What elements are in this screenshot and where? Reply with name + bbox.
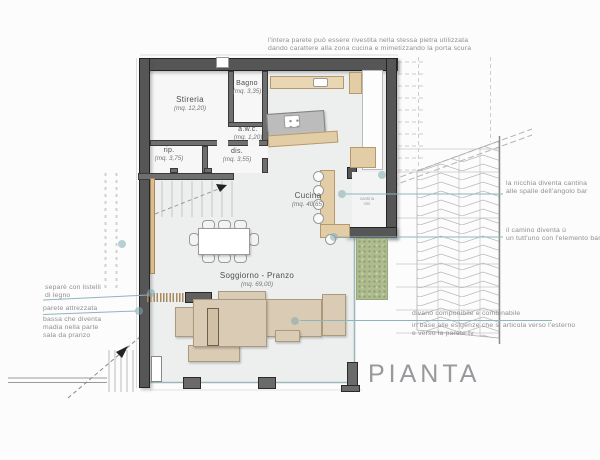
annotation-line: madia nella parte — [43, 324, 101, 332]
annotation-parete-line1: parete attrezzata — [43, 305, 97, 313]
room-label-soggiorno: Soggiorno - Pranzo (mq. 69,00) — [207, 271, 307, 288]
room-area: (mq. 12,20) — [150, 105, 230, 112]
room-name: Soggiorno - Pranzo — [207, 271, 307, 280]
annotation-line: l'intera parete può essere rivestita nel… — [268, 37, 471, 45]
annotation-separe: separè con listelli di legno — [45, 284, 101, 300]
annotation-line: dando carattere alla zona cucina e mimet… — [268, 45, 471, 53]
niche-label-line: vini — [353, 201, 381, 206]
room-label-bagno: Bagno (mq. 3,35) — [227, 80, 267, 95]
room-name: rip. — [148, 147, 190, 154]
annotation-line: la nicchia diventa cantina — [506, 180, 588, 188]
annotation-line: in base alle esigenze che si articola ve… — [412, 322, 575, 330]
annotation-line: un tutt'uno con l'elemento banc — [506, 235, 600, 243]
room-area: (mq. 69,00) — [207, 281, 307, 288]
annotation-line: bassa che diventa — [43, 316, 101, 324]
room-label-rip: rip. (mq. 3,75) — [148, 147, 190, 162]
annotation-parete-rest: bassa che diventa madia nella parte sala… — [43, 316, 101, 340]
annotation-line: e verso la parete tv — [412, 330, 575, 338]
annotation-camino: il camino diventa ù un tutt'uno con l'el… — [506, 227, 600, 243]
floor-plan-canvas: Stireria (mq. 12,20) Bagno (mq. 3,35) a.… — [0, 0, 600, 460]
niche-label-cantina: cantina vini — [353, 196, 381, 206]
drawing-title: PIANTA — [368, 360, 480, 389]
annotation-line: il camino diventa ù — [506, 227, 600, 235]
room-label-cucina: Cucina (mq. 40,65) — [278, 191, 338, 208]
annotation-line: sala da pranzo — [43, 332, 101, 340]
leader-lines — [43, 194, 552, 321]
annotation-divano-rest: in base alle esigenze che si articola ve… — [412, 322, 575, 338]
room-name: a.w.c. — [228, 126, 268, 133]
room-label-dis: dis. (mq. 3,55) — [216, 148, 258, 163]
room-name: Cucina — [278, 191, 338, 200]
room-name: Bagno — [227, 80, 267, 87]
room-area: (mq. 40,65) — [278, 201, 338, 208]
annotation-line: separè con listelli — [45, 284, 101, 292]
room-name: dis. — [216, 148, 258, 155]
annotation-line: di legno — [45, 292, 101, 300]
leader-dots — [118, 171, 386, 325]
room-label-stireria: Stireria (mq. 12,20) — [150, 95, 230, 112]
room-area: (mq. 3,35) — [227, 88, 267, 95]
room-label-awc: a.w.c. (mq. 1,20) — [228, 126, 268, 141]
annotation-divano-line1: divano componibile e combinabile — [412, 310, 520, 318]
room-area: (mq. 3,75) — [148, 155, 190, 162]
annotation-line: alle spalle dell'angolo bar — [506, 188, 588, 196]
room-name: Stireria — [150, 95, 230, 104]
annotation-top: l'intera parete può essere rivestita nel… — [268, 37, 471, 53]
room-area: (mq. 1,20) — [228, 134, 268, 141]
annotation-niche: la nicchia diventa cantina alle spalle d… — [506, 180, 588, 196]
room-area: (mq. 3,55) — [216, 156, 258, 163]
